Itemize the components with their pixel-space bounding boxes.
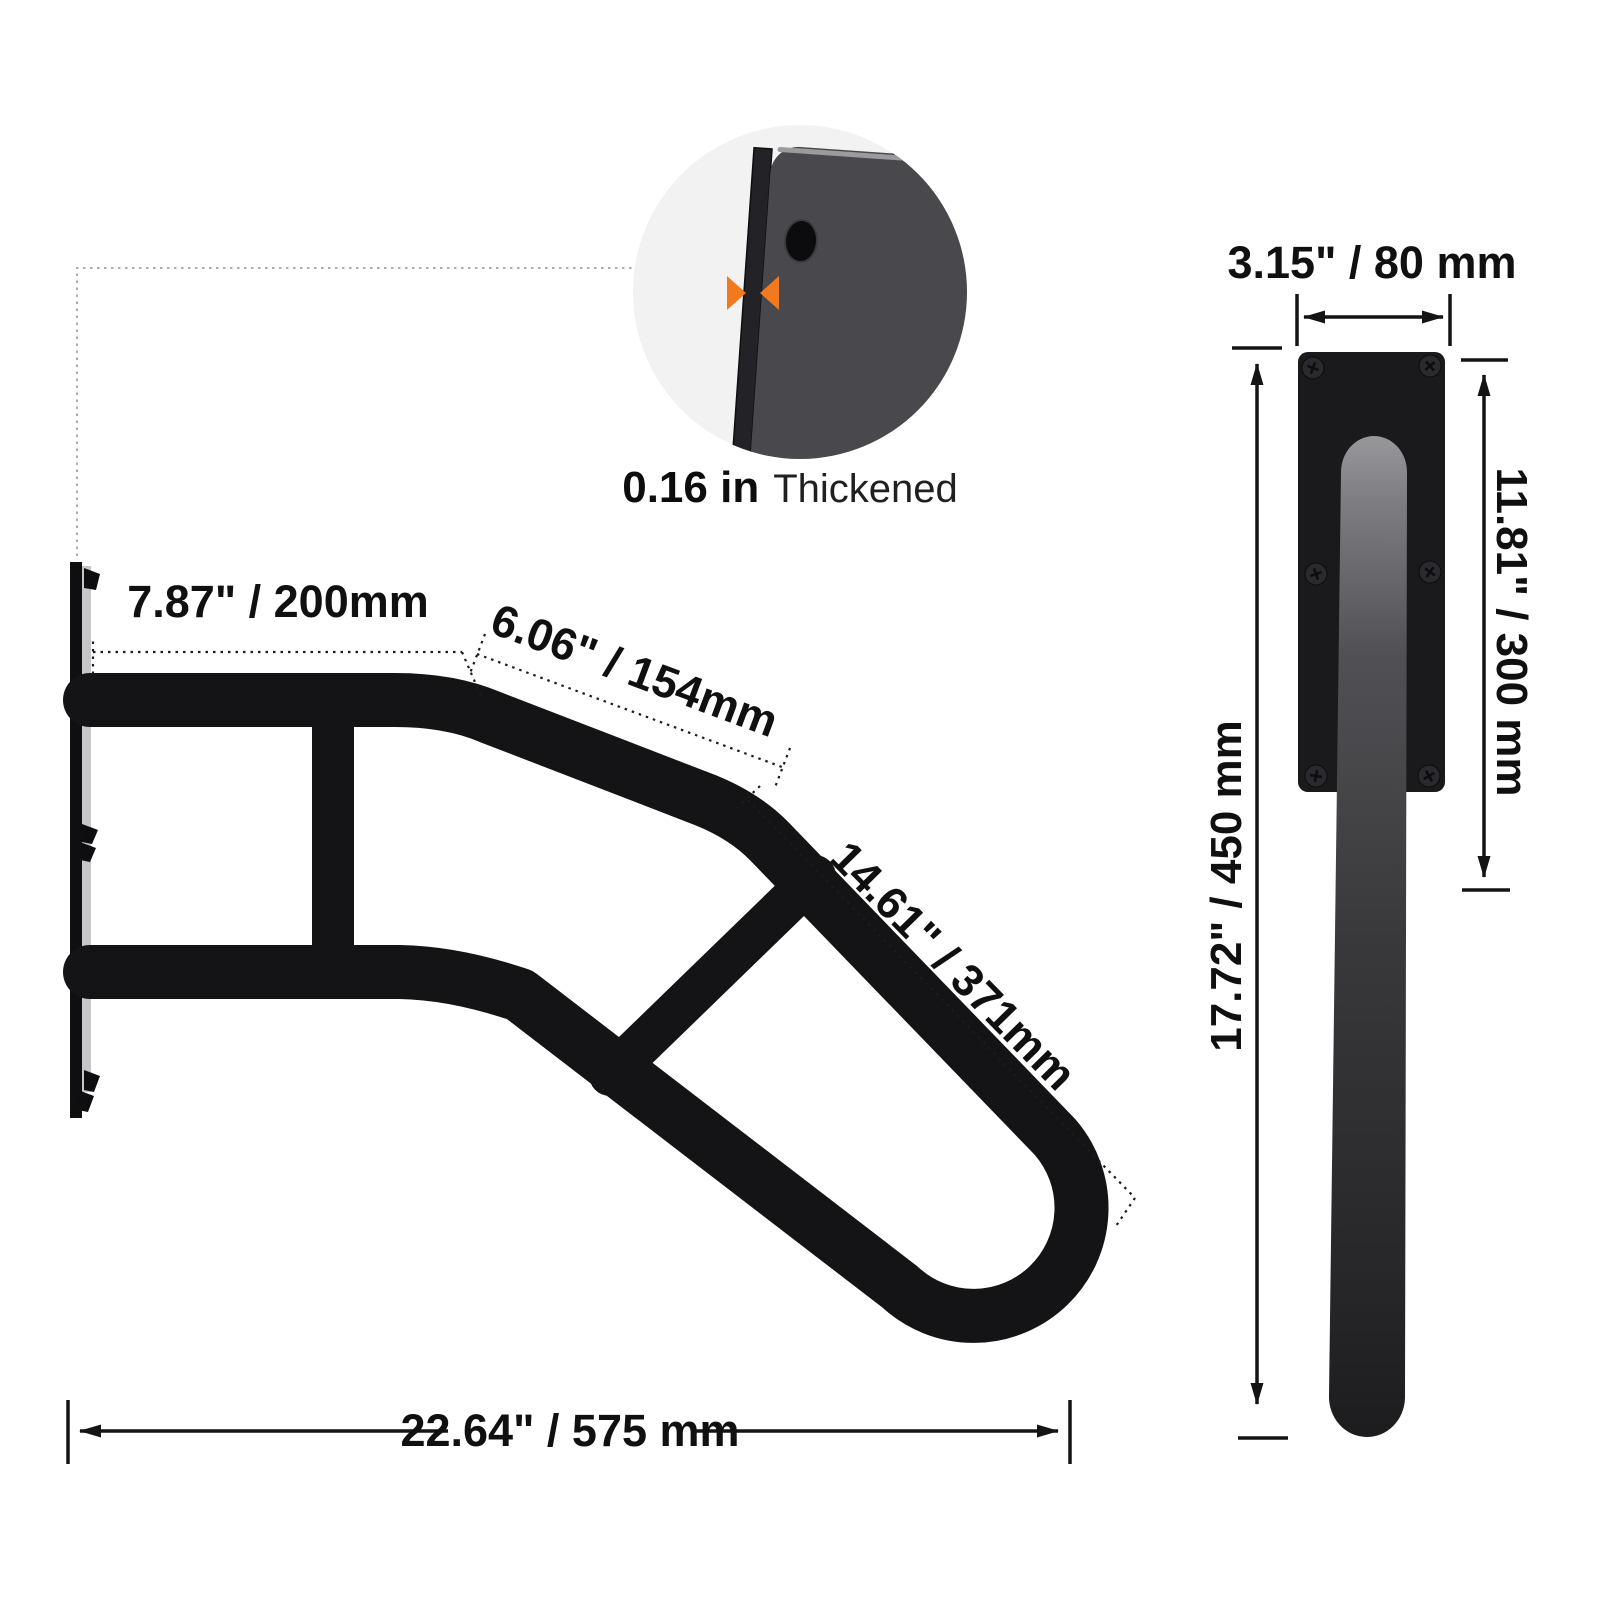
dim-575mm: 22.64" / 575 mm [68,1400,1070,1464]
mounting-clip-icon [80,842,96,862]
diagonal-brace-tube [610,876,815,1075]
grab-bar-tube-outline [90,700,1082,1316]
grab-bar-dimension-diagram: 0.16 inThickened 7.87" / 200mm [0,0,1600,1600]
mounting-clip-icon [82,824,98,844]
side-view: 7.87" / 200mm 6.06" / 154mm 14.61" / 371… [68,562,1135,1464]
diagram-canvas: 0.16 inThickened 7.87" / 200mm [0,0,1600,1600]
mounting-clip-icon [84,1070,100,1092]
dim-300mm-label: 11.81" / 300 mm [1487,467,1536,796]
callout-leader-line [77,268,634,556]
mounting-clip-icon [84,568,100,590]
detail-plate-corner [720,144,1201,664]
wall-plate-edge [70,562,82,1118]
mounting-clip-icon [78,1090,94,1112]
thickness-value-text: 0.16 in [622,463,759,512]
thickness-label: 0.16 inThickened [622,463,958,512]
dim-450mm-label: 17.72" / 450 mm [1202,720,1251,1052]
dim-200mm-label: 7.87" / 200mm [127,576,429,627]
dim-300mm: 11.81" / 300 mm [1461,360,1536,890]
dim-80mm: 3.15" / 80 mm [1227,237,1516,346]
dim-80mm-label: 3.15" / 80 mm [1227,237,1516,288]
dim-575mm-label: 22.64" / 575 mm [400,1405,739,1456]
dim-450mm: 17.72" / 450 mm [1202,348,1288,1438]
thickness-label-text: Thickened [773,467,958,511]
front-grab-bar-tube [1329,436,1407,1437]
front-view: 3.15" / 80 mm 11.81" / 300 mm [1202,237,1536,1438]
